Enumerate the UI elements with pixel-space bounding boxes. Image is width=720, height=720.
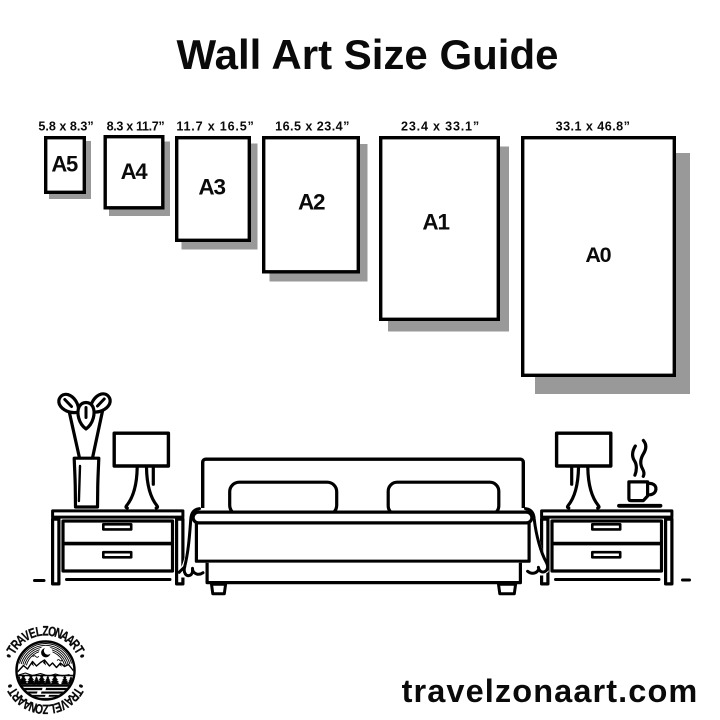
svg-text:Wall Art Size Guide: Wall Art Size Guide [177, 31, 559, 78]
svg-text:33.1 x 46.8”: 33.1 x 46.8” [556, 120, 631, 134]
svg-text:travelzonaart.com: travelzonaart.com [402, 673, 699, 709]
svg-text:A1: A1 [422, 209, 449, 234]
svg-text:5.8 x 8.3”: 5.8 x 8.3” [38, 120, 93, 134]
svg-text:16.5 x 23.4”: 16.5 x 23.4” [275, 120, 350, 134]
svg-text:8.3 x 11.7”: 8.3 x 11.7” [107, 120, 165, 134]
svg-text:A0: A0 [585, 243, 611, 267]
svg-text:A5: A5 [51, 151, 78, 176]
svg-text:A4: A4 [121, 159, 149, 184]
svg-text:23.4 x 33.1”: 23.4 x 33.1” [401, 120, 480, 134]
svg-text:A3: A3 [198, 174, 225, 199]
svg-text:11.7 x 16.5”: 11.7 x 16.5” [176, 120, 254, 134]
svg-text:A2: A2 [298, 189, 325, 214]
